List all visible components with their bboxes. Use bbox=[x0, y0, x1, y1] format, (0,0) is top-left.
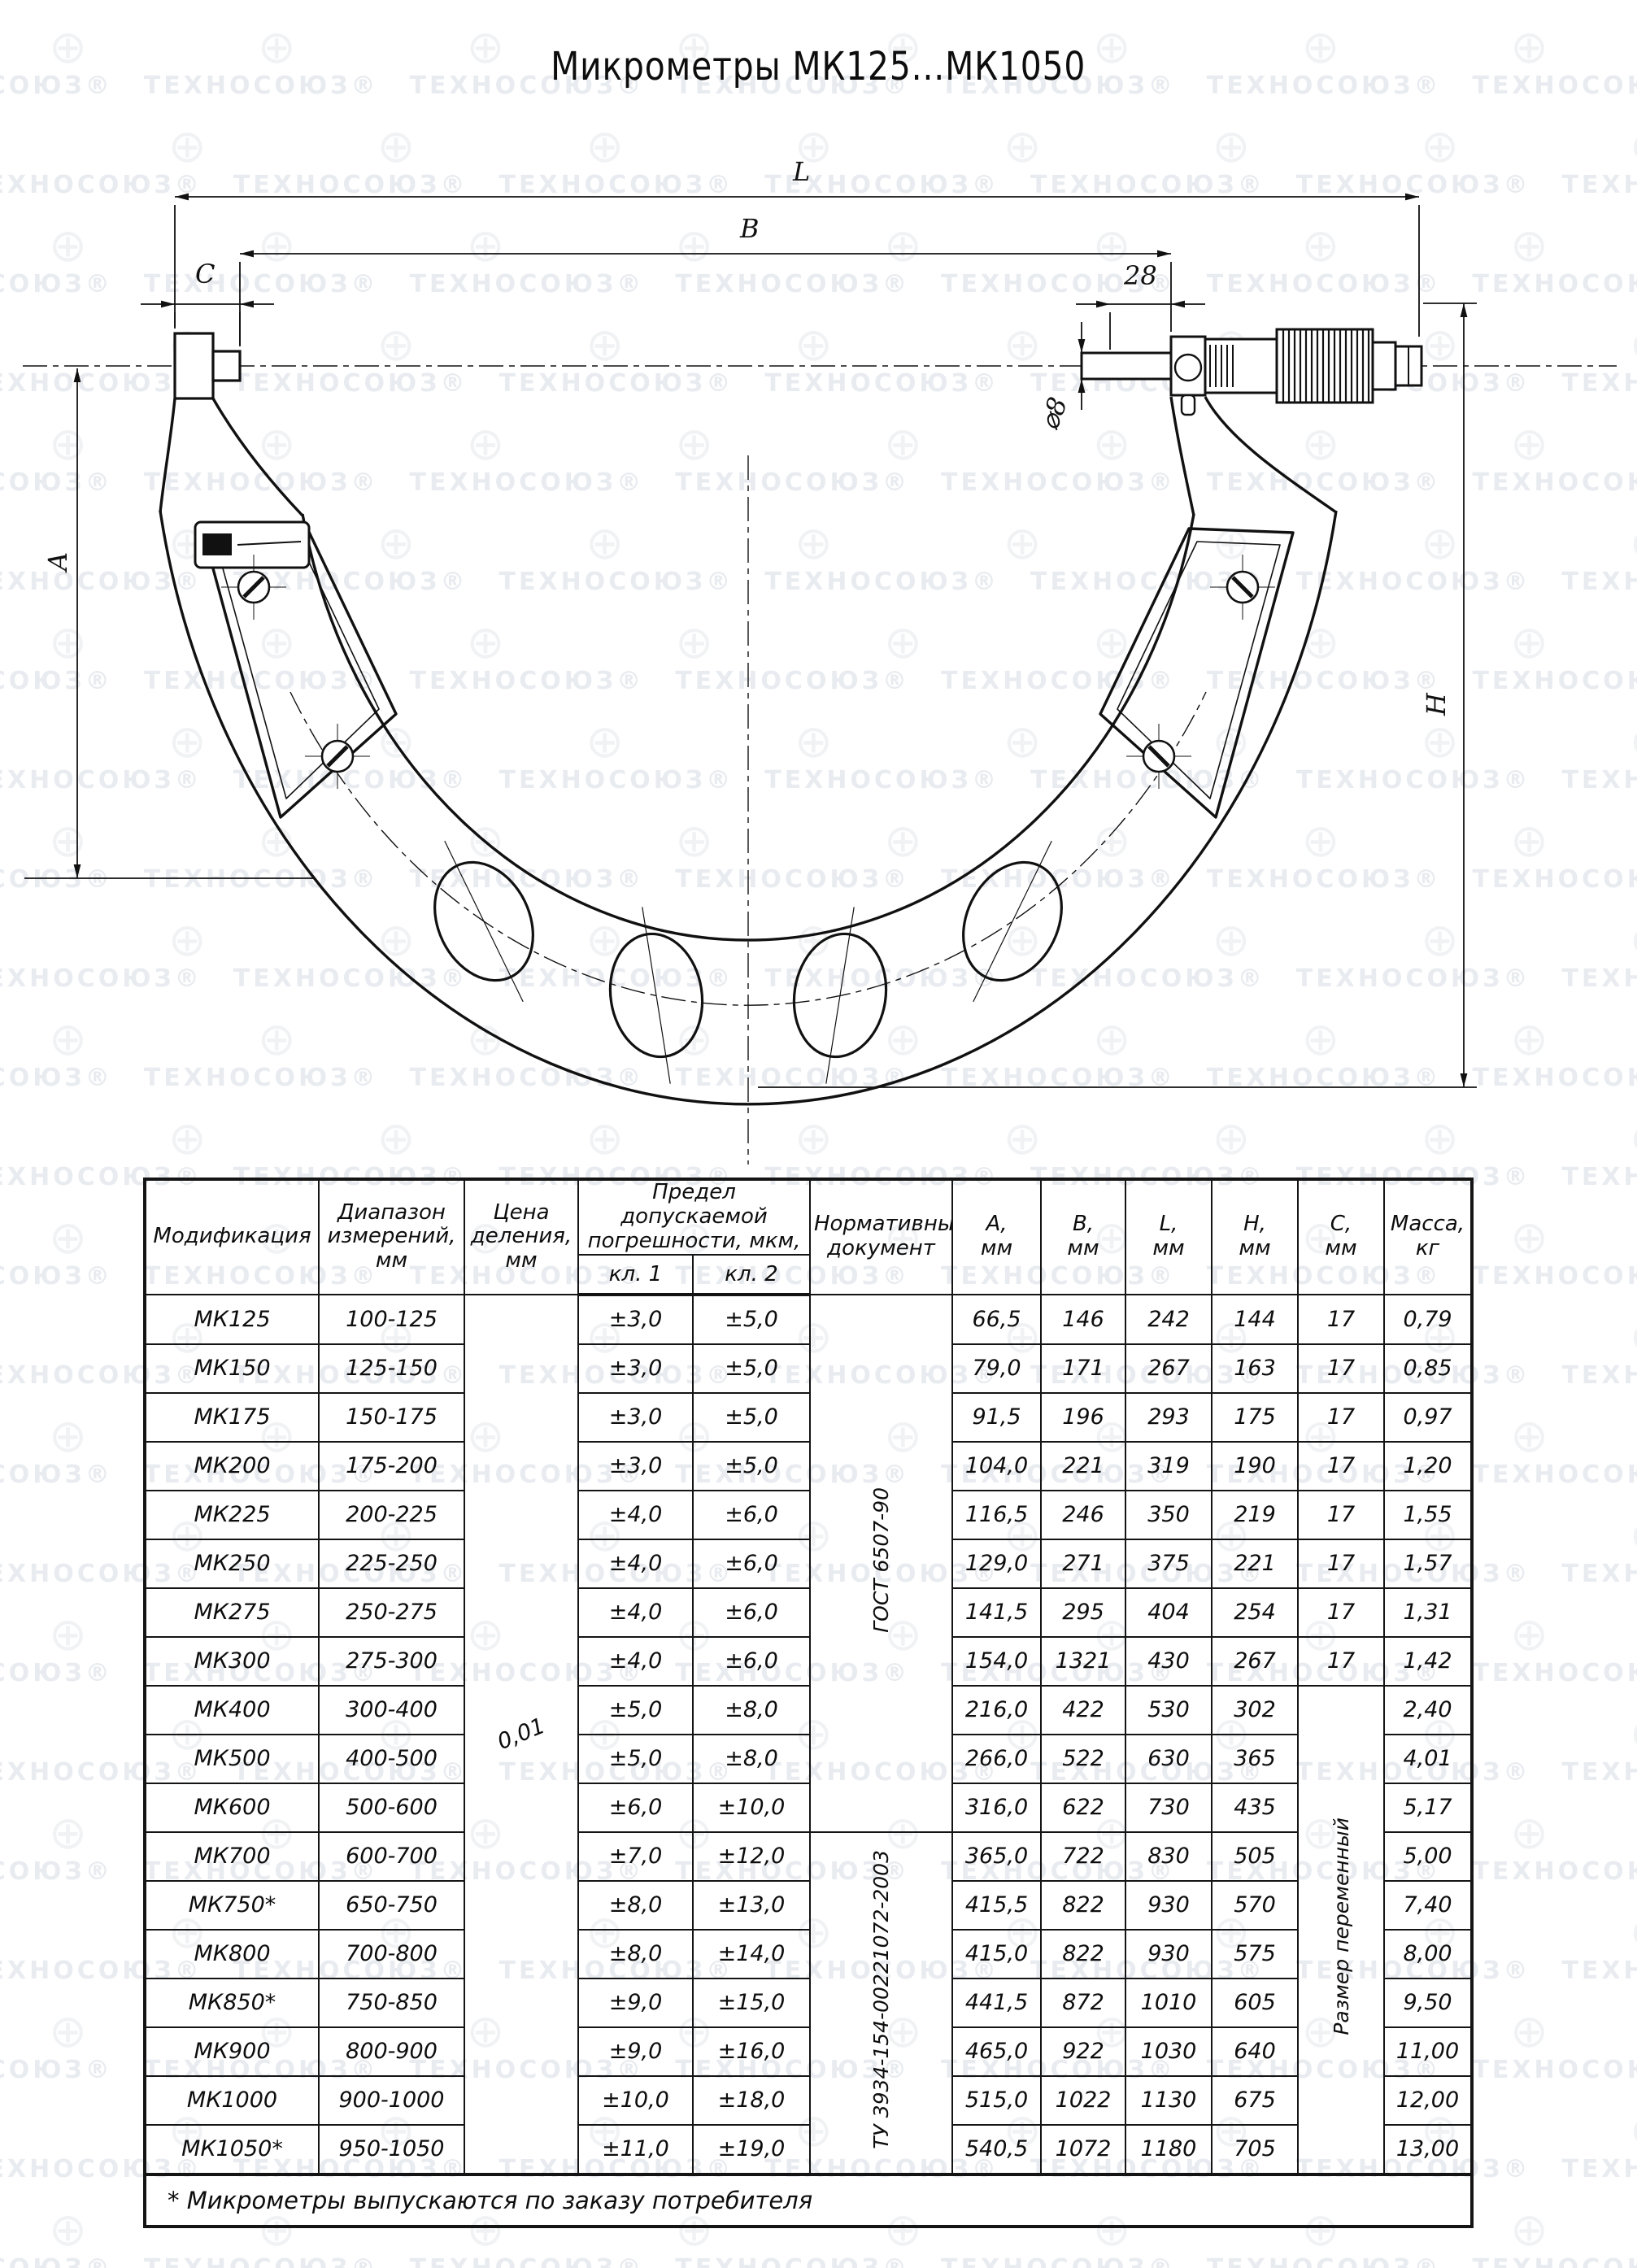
cell-b: 722 bbox=[1041, 1832, 1125, 1881]
cell-model: МК275 bbox=[145, 1588, 319, 1637]
cell-model: МК150 bbox=[145, 1344, 319, 1393]
cell-h: 675 bbox=[1212, 2076, 1298, 2125]
cell-b: 822 bbox=[1041, 1930, 1125, 1979]
cell-c: 17 bbox=[1298, 1588, 1384, 1637]
thimble bbox=[1277, 329, 1373, 403]
cell-a: 365,0 bbox=[952, 1832, 1041, 1881]
cell-h: 605 bbox=[1212, 1979, 1298, 2027]
lock-lever bbox=[1182, 395, 1195, 415]
cell-a: 154,0 bbox=[952, 1637, 1041, 1686]
cell-class2: ±6,0 bbox=[693, 1588, 810, 1637]
cell-range: 750-850 bbox=[319, 1979, 464, 2027]
cell-model: МК700 bbox=[145, 1832, 319, 1881]
cell-model: МК1000 bbox=[145, 2076, 319, 2125]
cell-h: 144 bbox=[1212, 1295, 1298, 1344]
table-row: МК175150-175±3,0±5,091,5196293175170,97 bbox=[145, 1393, 1472, 1442]
cell-l: 319 bbox=[1125, 1442, 1212, 1491]
cell-c: 17 bbox=[1298, 1539, 1384, 1588]
cell-h: 254 bbox=[1212, 1588, 1298, 1637]
cell-mass: 2,40 bbox=[1384, 1686, 1472, 1735]
spec-table: Модификация Диапазон измерений, мм Цена … bbox=[143, 1178, 1470, 2228]
cell-a: 79,0 bbox=[952, 1344, 1041, 1393]
cell-range: 400-500 bbox=[319, 1735, 464, 1783]
cell-mass: 8,00 bbox=[1384, 1930, 1472, 1979]
cell-class2: ±13,0 bbox=[693, 1881, 810, 1930]
cell-c: 17 bbox=[1298, 1491, 1384, 1539]
cell-b: 872 bbox=[1041, 1979, 1125, 2027]
cell-b: 1022 bbox=[1041, 2076, 1125, 2125]
table-row: МК400300-400±5,0±8,0216,0422530302Размер… bbox=[145, 1686, 1472, 1735]
cell-model: МК125 bbox=[145, 1295, 319, 1344]
anvil bbox=[175, 333, 240, 398]
col-header-modification: Модификация bbox=[145, 1179, 319, 1295]
center-lines bbox=[23, 366, 1617, 1164]
cell-class2: ±15,0 bbox=[693, 1979, 810, 2027]
cell-h: 705 bbox=[1212, 2125, 1298, 2174]
cell-mass: 5,17 bbox=[1384, 1783, 1472, 1832]
cell-a: 441,5 bbox=[952, 1979, 1041, 2027]
cell-l: 930 bbox=[1125, 1881, 1212, 1930]
cell-model: МК850* bbox=[145, 1979, 319, 2027]
cell-pitch-merged: 0,01 bbox=[464, 1295, 578, 2174]
cell-class2: ±5,0 bbox=[693, 1442, 810, 1491]
dim-label-dia8: ⌀8 bbox=[1034, 393, 1073, 433]
col-header-document: Нормативный документ bbox=[810, 1179, 952, 1295]
cell-a: 540,5 bbox=[952, 2125, 1041, 2174]
cell-l: 630 bbox=[1125, 1735, 1212, 1783]
cell-model: МК900 bbox=[145, 2027, 319, 2076]
cell-range: 800-900 bbox=[319, 2027, 464, 2076]
table-row: МК600500-600±6,0±10,0316,06227304355,17 bbox=[145, 1783, 1472, 1832]
cell-class2: ±18,0 bbox=[693, 2076, 810, 2125]
cell-doc-tu: ТУ 3934-154-00221072-2003 bbox=[810, 1832, 952, 2174]
cell-b: 221 bbox=[1041, 1442, 1125, 1491]
table-row: МК275250-275±4,0±6,0141,5295404254171,31 bbox=[145, 1588, 1472, 1637]
cell-range: 150-175 bbox=[319, 1393, 464, 1442]
cell-model: МК500 bbox=[145, 1735, 319, 1783]
col-header-c: С,мм bbox=[1298, 1179, 1384, 1295]
cell-class2: ±14,0 bbox=[693, 1930, 810, 1979]
col-header-a: А,мм bbox=[952, 1179, 1041, 1295]
cell-b: 922 bbox=[1041, 2027, 1125, 2076]
cell-range: 650-750 bbox=[319, 1881, 464, 1930]
cell-class2: ±6,0 bbox=[693, 1491, 810, 1539]
cell-b: 246 bbox=[1041, 1491, 1125, 1539]
cell-mass: 0,97 bbox=[1384, 1393, 1472, 1442]
cell-l: 404 bbox=[1125, 1588, 1212, 1637]
cell-b: 271 bbox=[1041, 1539, 1125, 1588]
dimension-L bbox=[175, 197, 1419, 337]
cell-class2: ±5,0 bbox=[693, 1393, 810, 1442]
cell-class2: ±8,0 bbox=[693, 1735, 810, 1783]
cell-class2: ±5,0 bbox=[693, 1344, 810, 1393]
cell-class1: ±10,0 bbox=[578, 2076, 693, 2125]
cell-range: 950-1050 bbox=[319, 2125, 464, 2174]
watermark-text-row: ТЕХНОСОЮЗ® ТЕХНОСОЮЗ® ТЕХНОСОЮЗ® ТЕХНОСО… bbox=[0, 2254, 1637, 2268]
cell-model: МК200 bbox=[145, 1442, 319, 1491]
cell-class1: ±5,0 bbox=[578, 1735, 693, 1783]
col-header-pitch: Цена деления, мм bbox=[464, 1179, 578, 1295]
cell-b: 622 bbox=[1041, 1783, 1125, 1832]
cell-class2: ±6,0 bbox=[693, 1637, 810, 1686]
cell-mass: 1,31 bbox=[1384, 1588, 1472, 1637]
cell-mass: 9,50 bbox=[1384, 1979, 1472, 2027]
dim-label-C: C bbox=[195, 259, 215, 289]
cell-range: 275-300 bbox=[319, 1637, 464, 1686]
table-row: МК300275-300±4,0±6,0154,01321430267171,4… bbox=[145, 1637, 1472, 1686]
cell-l: 830 bbox=[1125, 1832, 1212, 1881]
cell-range: 600-700 bbox=[319, 1832, 464, 1881]
cell-model: МК300 bbox=[145, 1637, 319, 1686]
table-row: МК125100-1250,01±3,0±5,0ГОСТ 6507-9066,5… bbox=[145, 1295, 1472, 1344]
table-row: МК150125-150±3,0±5,079,0171267163170,85 bbox=[145, 1344, 1472, 1393]
cell-class2: ±12,0 bbox=[693, 1832, 810, 1881]
cell-class1: ±4,0 bbox=[578, 1491, 693, 1539]
cell-b: 422 bbox=[1041, 1686, 1125, 1735]
page-title-text: Микрометры МК125...МК1050 bbox=[551, 44, 1086, 89]
table-row: МК500400-500±5,0±8,0266,05226303654,01 bbox=[145, 1735, 1472, 1783]
table-row: МК250225-250±4,0±6,0129,0271375221171,57 bbox=[145, 1539, 1472, 1588]
cell-c: 17 bbox=[1298, 1393, 1384, 1442]
cell-l: 930 bbox=[1125, 1930, 1212, 1979]
dim-label-B: B bbox=[739, 213, 760, 244]
cell-class1: ±4,0 bbox=[578, 1539, 693, 1588]
table-row: МК200175-200±3,0±5,0104,0221319190171,20 bbox=[145, 1442, 1472, 1491]
col-header-h: Н,мм bbox=[1212, 1179, 1298, 1295]
cell-range: 700-800 bbox=[319, 1930, 464, 1979]
cell-doc-gost: ГОСТ 6507-90 bbox=[810, 1295, 952, 1832]
heat-shield-left bbox=[203, 529, 396, 817]
table-row: МК750*650-750±8,0±13,0415,58229305707,40 bbox=[145, 1881, 1472, 1930]
cell-mass: 13,00 bbox=[1384, 2125, 1472, 2174]
cell-model: МК400 bbox=[145, 1686, 319, 1735]
cell-range: 100-125 bbox=[319, 1295, 464, 1344]
cell-model: МК1050* bbox=[145, 2125, 319, 2174]
table-row: МК850*750-850±9,0±15,0441,587210106059,5… bbox=[145, 1979, 1472, 2027]
cell-a: 66,5 bbox=[952, 1295, 1041, 1344]
cell-range: 175-200 bbox=[319, 1442, 464, 1491]
cell-l: 242 bbox=[1125, 1295, 1212, 1344]
page-title: Микрометры МК125...МК1050 bbox=[0, 44, 1637, 89]
table-row: МК225200-225±4,0±6,0116,5246350219171,55 bbox=[145, 1491, 1472, 1539]
dim-label-A: A bbox=[42, 552, 73, 573]
cell-b: 1321 bbox=[1041, 1637, 1125, 1686]
cell-mass: 4,01 bbox=[1384, 1735, 1472, 1783]
table-row: МК1000900-1000±10,0±18,0515,010221130675… bbox=[145, 2076, 1472, 2125]
cell-l: 1010 bbox=[1125, 1979, 1212, 2027]
cell-class1: ±11,0 bbox=[578, 2125, 693, 2174]
cell-h: 163 bbox=[1212, 1344, 1298, 1393]
cell-a: 415,0 bbox=[952, 1930, 1041, 1979]
cell-b: 196 bbox=[1041, 1393, 1125, 1442]
cell-h: 365 bbox=[1212, 1735, 1298, 1783]
cell-class1: ±3,0 bbox=[578, 1393, 693, 1442]
cell-class1: ±8,0 bbox=[578, 1881, 693, 1930]
brand-logo-mark bbox=[202, 533, 232, 555]
cell-a: 129,0 bbox=[952, 1539, 1041, 1588]
cell-class1: ±9,0 bbox=[578, 2027, 693, 2076]
cell-h: 575 bbox=[1212, 1930, 1298, 1979]
cell-l: 293 bbox=[1125, 1393, 1212, 1442]
brand-plate bbox=[195, 522, 309, 568]
dimension-B bbox=[240, 254, 1171, 345]
cell-h: 302 bbox=[1212, 1686, 1298, 1735]
cell-a: 216,0 bbox=[952, 1686, 1041, 1735]
spindle-head bbox=[1082, 329, 1421, 415]
cell-class1: ±3,0 bbox=[578, 1442, 693, 1491]
cell-h: 190 bbox=[1212, 1442, 1298, 1491]
cell-b: 522 bbox=[1041, 1735, 1125, 1783]
cell-mass: 7,40 bbox=[1384, 1881, 1472, 1930]
cell-a: 465,0 bbox=[952, 2027, 1041, 2076]
cell-l: 1030 bbox=[1125, 2027, 1212, 2076]
cell-l: 267 bbox=[1125, 1344, 1212, 1393]
cell-model: МК250 bbox=[145, 1539, 319, 1588]
dim-label-28: 28 bbox=[1123, 260, 1157, 291]
cell-model: МК800 bbox=[145, 1930, 319, 1979]
cell-c: 17 bbox=[1298, 1295, 1384, 1344]
dimension-H bbox=[758, 303, 1477, 1087]
cell-range: 300-400 bbox=[319, 1686, 464, 1735]
cell-mass: 1,55 bbox=[1384, 1491, 1472, 1539]
cell-range: 200-225 bbox=[319, 1491, 464, 1539]
cell-b: 1072 bbox=[1041, 2125, 1125, 2174]
micrometer-drawing: L B C 28 ⌀8 bbox=[0, 0, 1637, 1179]
cell-mass: 0,79 bbox=[1384, 1295, 1472, 1344]
cell-l: 1180 bbox=[1125, 2125, 1212, 2174]
cell-h: 221 bbox=[1212, 1539, 1298, 1588]
cell-b: 822 bbox=[1041, 1881, 1125, 1930]
col-header-error: Предел допускаемой погрешности, мкм, bbox=[578, 1179, 810, 1255]
cell-class2: ±8,0 bbox=[693, 1686, 810, 1735]
cell-l: 430 bbox=[1125, 1637, 1212, 1686]
cell-b: 295 bbox=[1041, 1588, 1125, 1637]
cell-a: 415,5 bbox=[952, 1881, 1041, 1930]
col-header-range: Диапазон измерений, мм bbox=[319, 1179, 464, 1295]
dim-label-H: H bbox=[1421, 692, 1452, 716]
cell-class1: ±4,0 bbox=[578, 1637, 693, 1686]
cell-model: МК225 bbox=[145, 1491, 319, 1539]
spec-table-body: МК125100-1250,01±3,0±5,0ГОСТ 6507-9066,5… bbox=[145, 1295, 1472, 2174]
spindle-rod bbox=[1082, 353, 1171, 379]
cell-l: 730 bbox=[1125, 1783, 1212, 1832]
cell-l: 530 bbox=[1125, 1686, 1212, 1735]
cell-l: 350 bbox=[1125, 1491, 1212, 1539]
cell-range: 500-600 bbox=[319, 1783, 464, 1832]
cell-class2: ±6,0 bbox=[693, 1539, 810, 1588]
cell-mass: 1,57 bbox=[1384, 1539, 1472, 1588]
col-header-mass: Масса,кг bbox=[1384, 1179, 1472, 1295]
datasheet-page: ТЕХНОСОЮЗ® ТЕХНОСОЮЗ® ТЕХНОСОЮЗ® ТЕХНОСО… bbox=[0, 0, 1637, 2268]
cell-class1: ±3,0 bbox=[578, 1295, 693, 1344]
cell-c: 17 bbox=[1298, 1637, 1384, 1686]
cell-class2: ±5,0 bbox=[693, 1295, 810, 1344]
cell-range: 250-275 bbox=[319, 1588, 464, 1637]
table-footnote: * Микрометры выпускаются по заказу потре… bbox=[145, 2174, 1472, 2227]
cell-class2: ±10,0 bbox=[693, 1783, 810, 1832]
cell-c: 17 bbox=[1298, 1344, 1384, 1393]
cell-mass: 0,85 bbox=[1384, 1344, 1472, 1393]
cell-class2: ±16,0 bbox=[693, 2027, 810, 2076]
cell-range: 225-250 bbox=[319, 1539, 464, 1588]
heat-shield-right bbox=[1100, 529, 1293, 817]
cell-mass: 12,00 bbox=[1384, 2076, 1472, 2125]
cell-c: 17 bbox=[1298, 1442, 1384, 1491]
cell-class2: ±19,0 bbox=[693, 2125, 810, 2174]
cell-mass: 5,00 bbox=[1384, 1832, 1472, 1881]
table-row: МК900800-900±9,0±16,0465,0922103064011,0… bbox=[145, 2027, 1472, 2076]
cell-b: 171 bbox=[1041, 1344, 1125, 1393]
cell-a: 104,0 bbox=[952, 1442, 1041, 1491]
cell-mass: 11,00 bbox=[1384, 2027, 1472, 2076]
cell-model: МК600 bbox=[145, 1783, 319, 1832]
cell-model: МК750* bbox=[145, 1881, 319, 1930]
table-row: МК1050*950-1050±11,0±19,0540,51072118070… bbox=[145, 2125, 1472, 2174]
cell-b: 146 bbox=[1041, 1295, 1125, 1344]
cell-model: МК175 bbox=[145, 1393, 319, 1442]
cell-h: 640 bbox=[1212, 2027, 1298, 2076]
cell-a: 515,0 bbox=[952, 2076, 1041, 2125]
cell-a: 116,5 bbox=[952, 1491, 1041, 1539]
cell-class1: ±4,0 bbox=[578, 1588, 693, 1637]
cell-class1: ±3,0 bbox=[578, 1344, 693, 1393]
cell-mass: 1,42 bbox=[1384, 1637, 1472, 1686]
cell-class1: ±9,0 bbox=[578, 1979, 693, 2027]
cell-h: 175 bbox=[1212, 1393, 1298, 1442]
col-header-b: В,мм bbox=[1041, 1179, 1125, 1295]
cell-a: 141,5 bbox=[952, 1588, 1041, 1637]
col-header-l: L,мм bbox=[1125, 1179, 1212, 1295]
cell-range: 125-150 bbox=[319, 1344, 464, 1393]
cell-l: 1130 bbox=[1125, 2076, 1212, 2125]
cell-h: 219 bbox=[1212, 1491, 1298, 1539]
cell-class1: ±8,0 bbox=[578, 1930, 693, 1979]
cell-l: 375 bbox=[1125, 1539, 1212, 1588]
cell-mass: 1,20 bbox=[1384, 1442, 1472, 1491]
cell-range: 900-1000 bbox=[319, 2076, 464, 2125]
cell-c-variable: Размер переменный bbox=[1298, 1686, 1384, 2174]
dim-label-L: L bbox=[792, 156, 810, 187]
cell-a: 316,0 bbox=[952, 1783, 1041, 1832]
cell-h: 267 bbox=[1212, 1637, 1298, 1686]
cell-a: 91,5 bbox=[952, 1393, 1041, 1442]
ratchet bbox=[1373, 342, 1395, 390]
cell-a: 266,0 bbox=[952, 1735, 1041, 1783]
table-row: МК800700-800±8,0±14,0415,08229305758,00 bbox=[145, 1930, 1472, 1979]
table-row: МК700600-700±7,0±12,0ТУ 3934-154-0022107… bbox=[145, 1832, 1472, 1881]
lock-ring bbox=[1175, 355, 1201, 381]
col-header-class1: кл. 1 bbox=[578, 1255, 693, 1295]
cell-class1: ±7,0 bbox=[578, 1832, 693, 1881]
cell-h: 435 bbox=[1212, 1783, 1298, 1832]
cell-class1: ±6,0 bbox=[578, 1783, 693, 1832]
col-header-class2: кл. 2 bbox=[693, 1255, 810, 1295]
cell-h: 570 bbox=[1212, 1881, 1298, 1930]
cell-h: 505 bbox=[1212, 1832, 1298, 1881]
cell-class1: ±5,0 bbox=[578, 1686, 693, 1735]
